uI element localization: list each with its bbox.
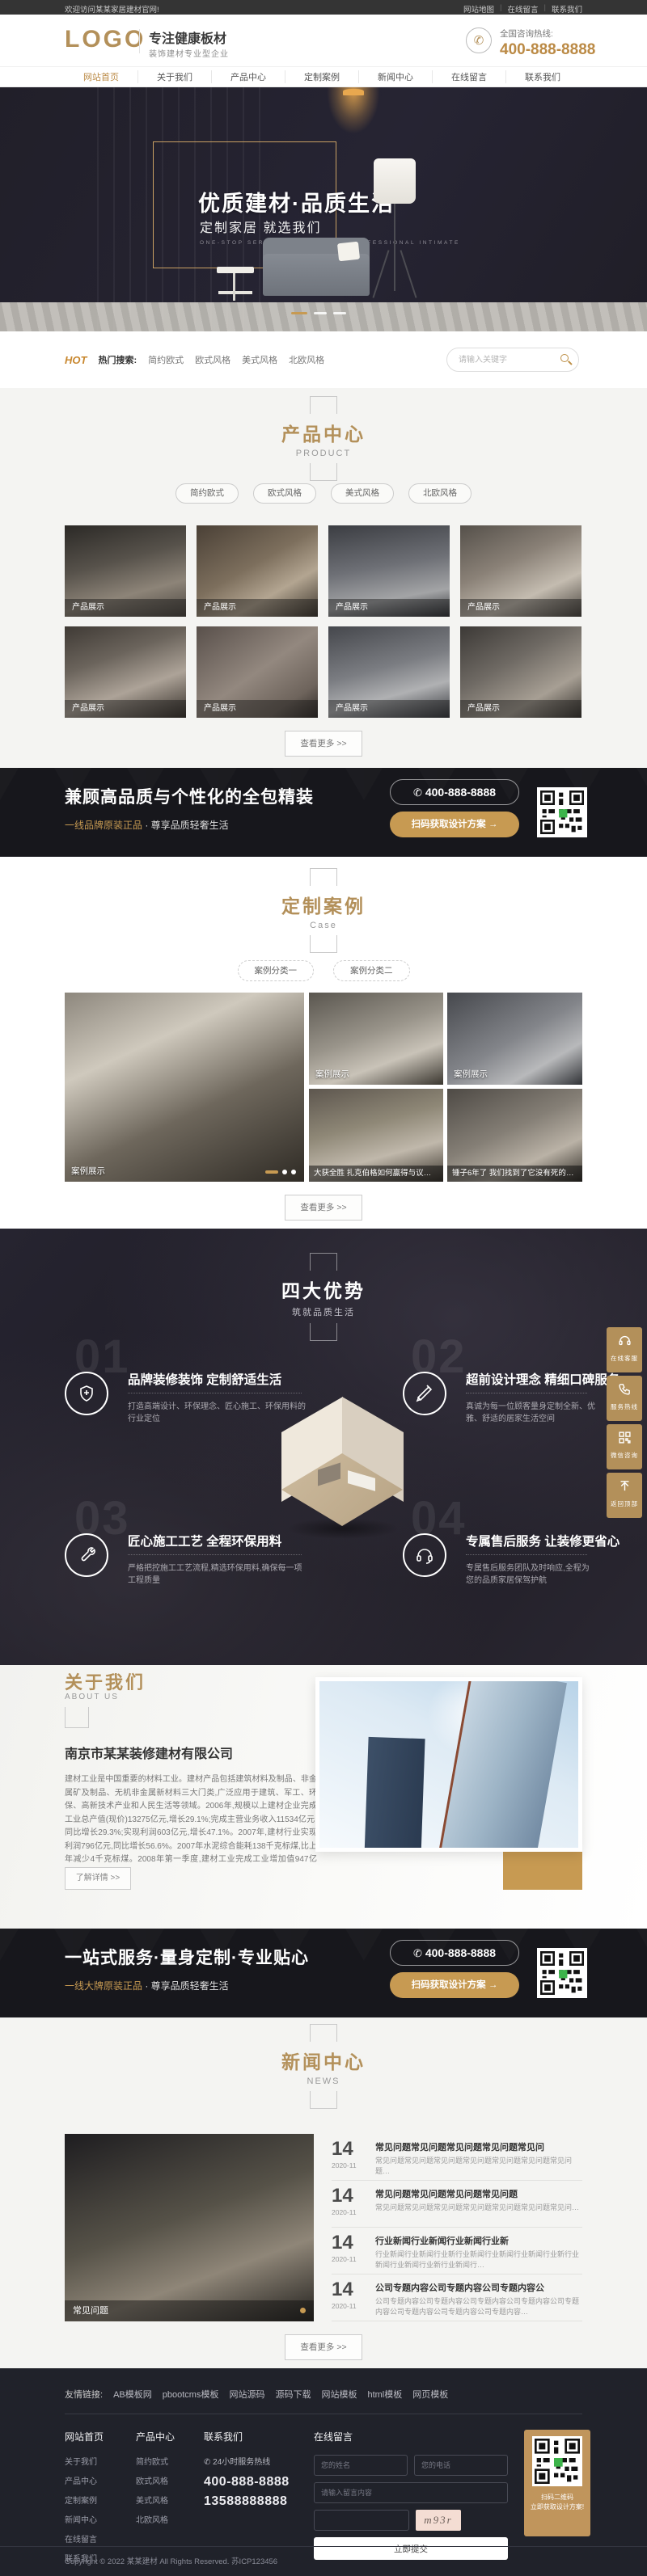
carousel-dot-active[interactable] bbox=[265, 1170, 278, 1174]
product-card[interactable]: 产品展示 bbox=[65, 626, 186, 718]
news-feature-label: 常见问题 bbox=[65, 2300, 314, 2321]
footer-contact-column: 联系我们 ✆ 24小时服务热线 400-888-8888 13588888888 bbox=[204, 2430, 290, 2514]
hot-keyword[interactable]: 欧式风格 bbox=[195, 353, 230, 366]
cases-subtitle: Case bbox=[0, 921, 647, 930]
phone-icon bbox=[618, 1382, 632, 1396]
filter-pill[interactable]: 简约欧式 bbox=[175, 483, 239, 504]
hot-keyword[interactable]: 美式风格 bbox=[242, 353, 277, 366]
hero-banner[interactable]: 优质建材·品质生活 定制家居 就选我们 ONE-STOP SERVICE · T… bbox=[0, 87, 647, 331]
footer-col-title: 联系我们 bbox=[204, 2430, 290, 2443]
case-carousel-dots bbox=[265, 1170, 296, 1174]
case-card-large[interactable]: 案例展示 bbox=[65, 993, 304, 1182]
products-section: 产品中心 PRODUCT 简约欧式 欧式风格 美式风格 北欧风格 产品展示 产品… bbox=[0, 388, 647, 768]
friend-link[interactable]: 网站模板 bbox=[321, 2388, 357, 2401]
headset-icon bbox=[618, 1334, 632, 1347]
products-title: 产品中心 bbox=[0, 419, 647, 446]
news-date: 2020-11 bbox=[332, 2255, 357, 2263]
news-row[interactable]: 14 2020-11 常见问题常见问题常见问题常见问题常见问 常见问题常见问题常… bbox=[332, 2134, 582, 2181]
company-building-photo bbox=[315, 1677, 582, 1852]
building-decor bbox=[364, 1737, 425, 1848]
product-card[interactable]: 产品展示 bbox=[460, 525, 581, 617]
case-card[interactable]: 锤子6年了 我们找到了它没有死的秘密 bbox=[447, 1089, 582, 1182]
case-collage: 案例展示 案例展示 案例展示 大获全胜 扎克伯格如何赢得与议员的当 锤子6年了 … bbox=[65, 993, 582, 1182]
about-subtitle: ABOUT US bbox=[65, 1693, 119, 1701]
phone-icon: ✆ bbox=[466, 27, 492, 53]
advantage-title: 专属售后服务 让装修更省心 bbox=[466, 1532, 620, 1549]
filter-pill[interactable]: 欧式风格 bbox=[253, 483, 316, 504]
dotted-divider bbox=[128, 1393, 302, 1393]
carousel-indicators bbox=[291, 312, 346, 314]
nav-item-home[interactable]: 网站首页 bbox=[65, 70, 137, 83]
friend-links: 友情链接: AB模板网 pbootcms模板 网站源码 源码下载 网站模板 ht… bbox=[65, 2388, 448, 2401]
logo[interactable]: LOGO bbox=[65, 26, 146, 53]
product-card[interactable]: 产品展示 bbox=[197, 525, 318, 617]
nav-item-products[interactable]: 产品中心 bbox=[211, 70, 285, 83]
copyright: Copyright © 2022 某某建材 All Rights Reserve… bbox=[0, 2546, 647, 2576]
product-label: 产品展示 bbox=[460, 599, 581, 617]
title-bracket-decor bbox=[310, 396, 337, 414]
advantages-section: 四大优势 筑就品质生活 01 品牌装修装饰 定制舒适生活 打造高端设计、环保理念… bbox=[0, 1229, 647, 1665]
products-subtitle: PRODUCT bbox=[0, 449, 647, 458]
title-bracket-decor bbox=[65, 1707, 89, 1728]
cta2-headline: 一站式服务·量身定制·专业贴心 bbox=[65, 1945, 309, 1969]
product-filters: 简约欧式 欧式风格 美式风格 北欧风格 bbox=[0, 483, 647, 504]
footer-link[interactable]: 欧式风格 bbox=[136, 2474, 175, 2486]
sofa-decor bbox=[263, 254, 370, 296]
news-list: 14 2020-11 常见问题常见问题常见问题常见问题常见问 常见问题常见问题常… bbox=[332, 2134, 582, 2321]
product-label: 产品展示 bbox=[65, 700, 186, 718]
advantages-title: 四大优势 bbox=[0, 1275, 647, 1303]
qr-code bbox=[537, 787, 587, 837]
case-tab[interactable]: 案例分类一 bbox=[238, 960, 315, 981]
company-intro: 建材工业是中国重要的材料工业。建材产品包括建筑材料及制品、非金属矿及制品、无机非… bbox=[65, 1773, 317, 1880]
product-label: 产品展示 bbox=[197, 599, 318, 617]
online-service-button[interactable]: 在线客服 bbox=[607, 1327, 642, 1372]
dotted-divider bbox=[128, 1554, 302, 1555]
case-label: 案例展示 bbox=[315, 1068, 349, 1080]
wall-lamp bbox=[343, 89, 364, 95]
friend-link[interactable]: 网页模板 bbox=[412, 2388, 448, 2401]
news-day: 14 bbox=[332, 2186, 353, 2206]
news-item-desc: 常见问题常见问题常见问题常见问题常见问题常见问题常见问题… bbox=[375, 2156, 581, 2177]
nav-item-contact[interactable]: 联系我们 bbox=[505, 70, 579, 83]
product-label: 产品展示 bbox=[460, 700, 581, 718]
footer-link[interactable]: 关于我们 bbox=[65, 2455, 104, 2467]
products-more-button[interactable]: 查看更多 >> bbox=[285, 731, 362, 757]
qr-icon bbox=[618, 1431, 632, 1444]
carousel-dot-active[interactable] bbox=[300, 2308, 306, 2313]
footer-link[interactable]: 简约欧式 bbox=[136, 2455, 175, 2467]
search-box bbox=[446, 348, 579, 372]
product-label: 产品展示 bbox=[65, 599, 186, 617]
wechat-qr-button[interactable]: 微信咨询 bbox=[607, 1424, 642, 1469]
news-item-title: 公司专题内容公司专题内容公司专题内容公 bbox=[375, 2281, 581, 2294]
case-card[interactable]: 案例展示 bbox=[309, 993, 443, 1085]
friend-link[interactable]: html模板 bbox=[367, 2388, 402, 2401]
arrow-up-icon bbox=[618, 1479, 632, 1493]
product-label: 产品展示 bbox=[328, 700, 450, 718]
case-tabs: 案例分类一 案例分类二 bbox=[0, 960, 647, 981]
footer-qr-box: 扫码二维码 立即获取设计方案! bbox=[524, 2430, 590, 2536]
news-subtitle: NEWS bbox=[0, 2076, 647, 2086]
friend-link[interactable]: pbootcms模板 bbox=[163, 2388, 219, 2401]
floor-lamp-pole bbox=[394, 204, 395, 291]
dotted-divider bbox=[466, 1393, 587, 1393]
friend-link[interactable]: AB模板网 bbox=[113, 2388, 152, 2401]
news-day: 14 bbox=[332, 2233, 353, 2253]
dotted-divider bbox=[466, 1554, 587, 1555]
carousel-dash[interactable] bbox=[314, 312, 327, 314]
case-card[interactable]: 案例展示 bbox=[447, 993, 582, 1085]
slogan-main: 专注健康板材 bbox=[149, 27, 226, 47]
topbar: 欢迎访问某某家居建材官网! 网站地图| 在线留言| 联系我们 bbox=[0, 0, 647, 15]
hot-label: 热门搜索: bbox=[98, 353, 137, 366]
product-card[interactable]: 产品展示 bbox=[460, 626, 581, 718]
carousel-dot[interactable] bbox=[282, 1170, 287, 1174]
qr-code bbox=[537, 1948, 587, 1998]
footer-col-title: 在线留言 bbox=[314, 2430, 508, 2443]
topbar-links: 网站地图| 在线留言| 联系我们 bbox=[463, 3, 582, 15]
footer-link[interactable]: 北欧风格 bbox=[136, 2513, 175, 2525]
service-headset-icon bbox=[403, 1533, 446, 1577]
news-item-title: 常见问题常见问题常见问题常见问题常见问 bbox=[375, 2140, 581, 2153]
footer-link[interactable]: 产品中心 bbox=[65, 2474, 104, 2486]
case-label: 案例展示 bbox=[454, 1068, 488, 1080]
footer-hotline-label: ✆ 24小时服务热线 bbox=[204, 2455, 290, 2467]
news-date: 2020-11 bbox=[332, 2302, 357, 2310]
hot-search-bar: HOT 热门搜索: 简约欧式 欧式风格 美式风格 北欧风格 bbox=[0, 331, 647, 388]
main-nav: 网站首页 关于我们 产品中心 定制案例 新闻中心 在线留言 联系我们 bbox=[0, 66, 647, 87]
case-tab[interactable]: 案例分类二 bbox=[333, 960, 410, 981]
floating-toolbar: 在线客服 服务热线 微信咨询 返回顶部 bbox=[607, 1327, 642, 1518]
message-field[interactable] bbox=[314, 2482, 508, 2503]
product-label: 产品展示 bbox=[328, 599, 450, 617]
title-bracket-decor bbox=[310, 868, 337, 886]
product-label: 产品展示 bbox=[197, 700, 318, 718]
news-day: 14 bbox=[332, 2140, 353, 2159]
footer-col-title: 产品中心 bbox=[136, 2430, 175, 2443]
footer-phone-2: 13588888888 bbox=[204, 2494, 290, 2509]
news-item-desc: 公司专题内容公司专题内容公司专题内容公司专题内容公司专题内容公司专题内容公司专题… bbox=[375, 2296, 581, 2317]
advantage-title: 品牌装修装饰 定制舒适生活 bbox=[128, 1370, 281, 1388]
footer-link[interactable]: 在线留言 bbox=[65, 2532, 104, 2544]
news-feature-card[interactable]: 常见问题 bbox=[65, 2134, 314, 2321]
logo-divider bbox=[139, 29, 140, 53]
about-title: 关于我们 bbox=[65, 1668, 146, 1694]
advantage-title: 超前设计理念 精细口碑服务 bbox=[466, 1370, 620, 1388]
hotline-number: 400-888-8888 bbox=[500, 41, 595, 59]
captcha-field[interactable] bbox=[314, 2510, 409, 2531]
advantages-subtitle: 筑就品质生活 bbox=[0, 1305, 647, 1318]
cta2-phone-button[interactable]: ✆400-888-8888 bbox=[390, 1940, 519, 1966]
company-name: 南京市某某装修建材有限公司 bbox=[65, 1743, 233, 1762]
title-bracket-decor bbox=[310, 463, 337, 481]
advantage-desc: 打造高端设计、环保理念、匠心施工、环保用料的行业定位 bbox=[128, 1401, 310, 1425]
shield-icon bbox=[65, 1372, 108, 1415]
cases-more-button[interactable]: 查看更多 >> bbox=[285, 1195, 362, 1221]
footer-products-column: 产品中心 简约欧式 欧式风格 美式风格 北欧风格 bbox=[136, 2430, 175, 2532]
product-card[interactable]: 产品展示 bbox=[328, 525, 450, 617]
news-item-title: 行业新闻行业新闻行业新闻行业新 bbox=[375, 2234, 581, 2247]
news-item-desc: 常见问题常见问题常见问题常见问题常见问题常见问题常见问… bbox=[375, 2203, 581, 2224]
advantage-desc: 真诚为每一位顾客量身定制全新、优雅、舒适的居家生活空间 bbox=[466, 1401, 595, 1425]
case-caption: 大获全胜 扎克伯格如何赢得与议员的当 bbox=[309, 1166, 443, 1182]
news-item-desc: 行业新闻行业新闻行业新行业新闻行业新闻行业新闻行业新行业新闻行业新闻行业新行业新… bbox=[375, 2249, 581, 2270]
title-bracket-decor bbox=[310, 2091, 337, 2109]
floor-lamp-leg bbox=[400, 250, 417, 298]
title-bracket-decor bbox=[310, 935, 337, 953]
page: 欢迎访问某某家居建材官网! 网站地图| 在线留言| 联系我们 LOGO 专注健康… bbox=[0, 0, 647, 2576]
product-card[interactable]: 产品展示 bbox=[65, 525, 186, 617]
cta1-qr-button[interactable]: 扫码获取设计方案 → bbox=[390, 812, 519, 837]
advantage-title: 匠心施工工艺 全程环保用料 bbox=[128, 1532, 281, 1549]
nav-item-about[interactable]: 关于我们 bbox=[137, 70, 211, 83]
news-row[interactable]: 14 2020-11 常见问题常见问题常见问题常见问题 常见问题常见问题常见问题… bbox=[332, 2181, 582, 2228]
product-grid: 产品展示 产品展示 产品展示 产品展示 产品展示 产品展示 产品展示 产品展示 bbox=[65, 525, 582, 718]
carousel-dot[interactable] bbox=[291, 1170, 296, 1174]
title-bracket-decor bbox=[310, 1323, 337, 1341]
news-row[interactable]: 14 2020-11 公司专题内容公司专题内容公司专题内容公 公司专题内容公司专… bbox=[332, 2275, 582, 2321]
news-section: 新闻中心 NEWS 常见问题 14 2020-11 常见问题常见问题常见问题常见… bbox=[0, 2017, 647, 2368]
phone-icon: ✆ bbox=[413, 1947, 422, 1959]
search-icon[interactable] bbox=[560, 354, 569, 362]
back-to-top-button[interactable]: 返回顶部 bbox=[607, 1473, 642, 1518]
qr-caption: 扫码二维码 立即获取设计方案! bbox=[524, 2493, 590, 2512]
cta1-phone-button[interactable]: ✆400-888-8888 bbox=[390, 779, 519, 805]
cta1-headline: 兼顾高品质与个性化的全包精装 bbox=[65, 784, 314, 808]
welcome-text: 欢迎访问某某家居建材官网! bbox=[65, 3, 159, 15]
phone-icon: ✆ bbox=[413, 786, 422, 799]
hero-subtitle: 定制家居 就选我们 bbox=[200, 217, 321, 236]
cases-title: 定制案例 bbox=[0, 891, 647, 918]
footer: 友情链接: AB模板网 pbootcms模板 网站源码 源码下载 网站模板 ht… bbox=[0, 2368, 647, 2576]
product-card[interactable]: 产品展示 bbox=[328, 626, 450, 718]
case-card[interactable]: 大获全胜 扎克伯格如何赢得与议员的当 bbox=[309, 1089, 443, 1182]
friend-link[interactable]: 源码下载 bbox=[275, 2388, 311, 2401]
hero-floor-decor bbox=[0, 302, 647, 331]
footer-phone-1: 400-888-8888 bbox=[204, 2475, 290, 2490]
phone-field[interactable] bbox=[414, 2455, 508, 2476]
cases-section: 定制案例 Case 案例分类一 案例分类二 案例展示 案例展示 案例展示 大获全… bbox=[0, 857, 647, 1229]
filter-pill[interactable]: 美式风格 bbox=[331, 483, 394, 504]
carousel-dash[interactable] bbox=[333, 312, 346, 314]
name-field[interactable] bbox=[314, 2455, 408, 2476]
topbar-link-sitemap[interactable]: 网站地图 bbox=[463, 3, 494, 15]
hot-keyword[interactable]: 简约欧式 bbox=[148, 353, 184, 366]
topbar-link-contact[interactable]: 联系我们 bbox=[552, 3, 582, 15]
news-title: 新闻中心 bbox=[0, 2047, 647, 2074]
title-bracket-decor bbox=[310, 2024, 337, 2042]
news-date: 2020-11 bbox=[332, 2161, 357, 2169]
hotline-label: 全国咨询热线: bbox=[500, 27, 553, 40]
news-row[interactable]: 14 2020-11 行业新闻行业新闻行业新闻行业新 行业新闻行业新闻行业新行业… bbox=[332, 2228, 582, 2275]
footer-link[interactable]: 美式风格 bbox=[136, 2494, 175, 2506]
design-tools-icon bbox=[403, 1372, 446, 1415]
cta2-qr-button[interactable]: 扫码获取设计方案 → bbox=[390, 1972, 519, 1998]
footer-message-form: 在线留言 m93r 立即提交 bbox=[314, 2430, 508, 2560]
slogan-sub: 装饰建材专业型企业 bbox=[149, 47, 229, 59]
nav-item-cases[interactable]: 定制案例 bbox=[285, 70, 358, 83]
footer-col-title: 网站首页 bbox=[65, 2430, 104, 2443]
floor-lamp-shade bbox=[374, 158, 416, 204]
news-more-button[interactable]: 查看更多 >> bbox=[285, 2334, 362, 2360]
advantage-desc: 严格把控施工工艺流程,精选环保用料,确保每一项工程质量 bbox=[128, 1562, 310, 1587]
footer-divider bbox=[65, 2414, 582, 2414]
filter-pill[interactable]: 北欧风格 bbox=[408, 483, 472, 504]
news-item-title: 常见问题常见问题常见问题常见问题 bbox=[375, 2187, 581, 2200]
floor-lamp-leg bbox=[372, 250, 389, 298]
about-more-button[interactable]: 了解详情 >> bbox=[65, 1867, 131, 1890]
nav-item-news[interactable]: 新闻中心 bbox=[358, 70, 432, 83]
friend-links-label: 友情链接: bbox=[65, 2388, 103, 2401]
cta-strip-2: 一站式服务·量身定制·专业贴心 一线大牌原装正品 · 尊享品质轻奢生活 ✆400… bbox=[0, 1929, 647, 2017]
topbar-link-message[interactable]: 在线留言 bbox=[508, 3, 539, 15]
footer-link[interactable]: 新闻中心 bbox=[65, 2513, 104, 2525]
cta2-tagline: 一线大牌原装正品 · 尊享品质轻奢生活 bbox=[65, 1979, 229, 1992]
side-table-decor bbox=[217, 267, 254, 273]
cta-strip-1: 兼顾高品质与个性化的全包精装 一线品牌原装正品 · 尊享品质轻奢生活 ✆400-… bbox=[0, 768, 647, 857]
advantage-desc: 专属售后服务团队及时响应,全程为您的品质家居保驾护航 bbox=[466, 1562, 595, 1587]
friend-link[interactable]: 网站源码 bbox=[229, 2388, 264, 2401]
hot-keyword[interactable]: 北欧风格 bbox=[289, 353, 324, 366]
footer-link[interactable]: 定制案例 bbox=[65, 2494, 104, 2506]
cta1-tagline: 一线品牌原装正品 · 尊享品质轻奢生活 bbox=[65, 818, 229, 832]
about-section: 关于我们 ABOUT US 南京市某某装修建材有限公司 建材工业是中国重要的材料… bbox=[0, 1665, 647, 1929]
hero-title: 优质建材·品质生活 bbox=[198, 186, 395, 217]
sofa-pillow-decor bbox=[337, 242, 360, 262]
nav-item-message[interactable]: 在线留言 bbox=[432, 70, 505, 83]
search-input[interactable] bbox=[459, 349, 552, 370]
wrench-icon bbox=[65, 1533, 108, 1577]
product-card[interactable]: 产品展示 bbox=[197, 626, 318, 718]
service-hotline-button[interactable]: 服务热线 bbox=[607, 1376, 642, 1421]
hot-tag: HOT bbox=[65, 354, 87, 366]
case-label: 案例展示 bbox=[71, 1165, 105, 1177]
news-day: 14 bbox=[332, 2280, 353, 2300]
side-table-leg-decor bbox=[233, 273, 235, 301]
carousel-dash-active[interactable] bbox=[291, 312, 307, 314]
news-date: 2020-11 bbox=[332, 2208, 357, 2216]
qr-code bbox=[532, 2436, 582, 2486]
title-bracket-decor bbox=[310, 1253, 337, 1271]
captcha-image[interactable]: m93r bbox=[416, 2510, 461, 2531]
case-caption: 锤子6年了 我们找到了它没有死的秘密 bbox=[447, 1166, 582, 1182]
header: LOGO 专注健康板材 装饰建材专业型企业 ✆ 全国咨询热线: 400-888-… bbox=[0, 15, 647, 66]
